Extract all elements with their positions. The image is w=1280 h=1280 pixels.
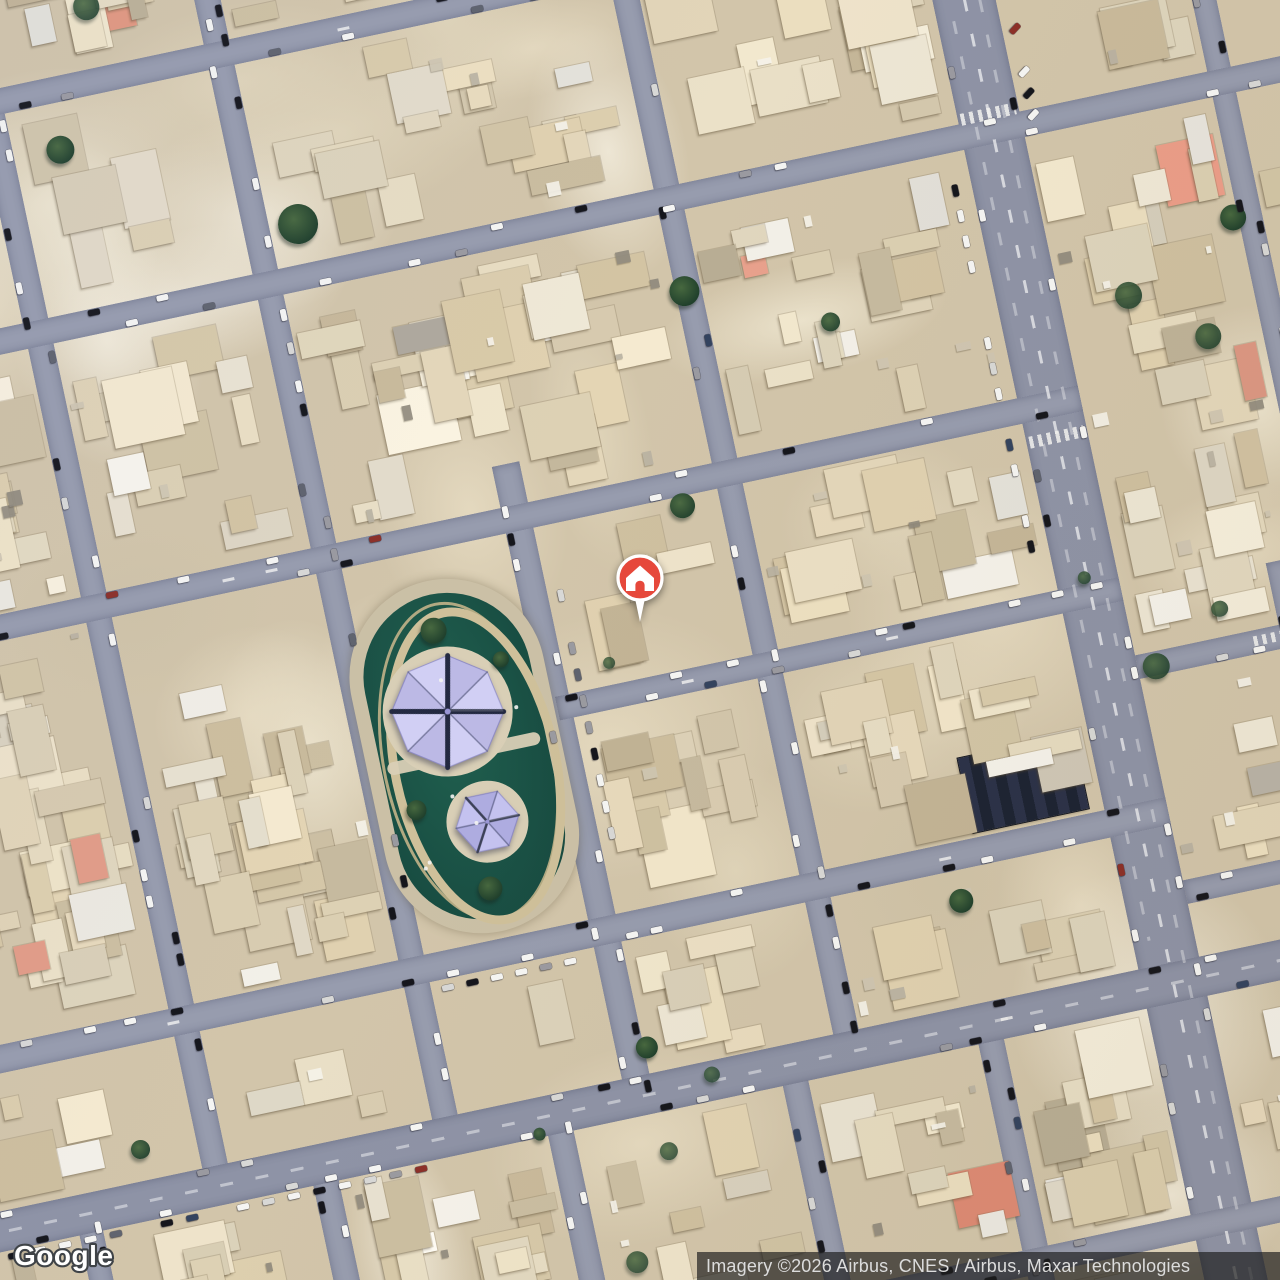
building bbox=[0, 911, 20, 942]
parked-car bbox=[186, 1214, 199, 1222]
building bbox=[358, 1091, 387, 1116]
parked-car bbox=[1009, 22, 1022, 35]
tree bbox=[129, 1139, 151, 1161]
parked-car bbox=[490, 973, 503, 981]
building bbox=[1063, 1160, 1128, 1226]
building bbox=[1241, 1100, 1266, 1126]
home-place-marker[interactable] bbox=[608, 550, 672, 626]
attribution-text: Imagery ©2026 Airbus, CNES / Airbus, Max… bbox=[697, 1256, 1190, 1277]
parked-car bbox=[288, 1192, 301, 1200]
google-logo[interactable]: Google bbox=[10, 1238, 160, 1274]
building bbox=[466, 84, 491, 109]
attribution-bar: Imagery ©2026 Airbus, CNES / Airbus, Max… bbox=[697, 1252, 1280, 1280]
building bbox=[216, 356, 253, 394]
building bbox=[0, 1130, 64, 1202]
parked-car bbox=[515, 968, 528, 976]
building bbox=[775, 0, 832, 38]
rooftop-unit bbox=[546, 181, 562, 197]
building bbox=[1035, 156, 1085, 222]
building bbox=[46, 576, 66, 595]
building bbox=[6, 0, 65, 7]
rooftop-unit bbox=[969, 1085, 976, 1093]
rooftop-unit bbox=[1205, 246, 1212, 254]
building bbox=[1247, 759, 1280, 795]
building bbox=[1075, 1018, 1153, 1099]
building bbox=[1233, 716, 1278, 753]
building bbox=[523, 273, 590, 341]
building bbox=[642, 0, 719, 44]
parked-car bbox=[957, 210, 965, 223]
tree bbox=[624, 1249, 650, 1275]
building bbox=[69, 883, 135, 941]
building bbox=[246, 1081, 304, 1116]
building bbox=[528, 980, 575, 1046]
building bbox=[697, 710, 739, 754]
building bbox=[225, 495, 258, 534]
building bbox=[101, 366, 185, 448]
building bbox=[663, 964, 711, 1011]
parked-car bbox=[564, 957, 577, 965]
building bbox=[24, 4, 57, 46]
rooftop-unit bbox=[838, 764, 848, 774]
building bbox=[107, 452, 151, 496]
rooftop-unit bbox=[650, 279, 660, 289]
parked-car bbox=[110, 1230, 123, 1238]
rooftop-unit bbox=[877, 357, 889, 369]
building bbox=[897, 365, 926, 412]
building bbox=[0, 1095, 22, 1120]
parked-car bbox=[989, 362, 997, 375]
park-bench bbox=[474, 820, 479, 825]
building bbox=[870, 35, 938, 105]
satellite-map-canvas[interactable] bbox=[0, 0, 1280, 1280]
parked-car bbox=[951, 184, 959, 197]
rooftop-unit bbox=[6, 490, 23, 508]
building bbox=[1124, 486, 1162, 524]
parked-car bbox=[160, 1219, 173, 1227]
building bbox=[295, 1050, 353, 1105]
parked-car bbox=[1005, 438, 1013, 451]
rooftop-unit bbox=[440, 1249, 449, 1259]
building bbox=[232, 394, 259, 446]
building bbox=[1097, 0, 1169, 70]
rooftop-unit bbox=[1092, 412, 1109, 428]
building bbox=[802, 59, 841, 102]
parked-car bbox=[1018, 65, 1031, 78]
parked-car bbox=[262, 1197, 275, 1205]
building bbox=[55, 1139, 105, 1177]
building bbox=[687, 67, 755, 135]
parked-car bbox=[995, 388, 1003, 401]
rooftop-unit bbox=[1177, 539, 1193, 556]
parked-car bbox=[539, 963, 552, 971]
rooftop-unit bbox=[873, 1223, 884, 1236]
rooftop-unit bbox=[862, 977, 875, 990]
satellite-map-viewport[interactable]: Google Imagery ©2026 Airbus, CNES / Airb… bbox=[0, 0, 1280, 1280]
rooftop-unit bbox=[803, 215, 812, 227]
parked-car bbox=[442, 983, 455, 991]
rooftop-unit bbox=[1102, 280, 1111, 289]
building bbox=[909, 173, 949, 231]
building bbox=[58, 1090, 112, 1144]
building bbox=[904, 773, 977, 845]
building bbox=[1133, 169, 1171, 207]
parked-car bbox=[967, 260, 975, 273]
parked-car bbox=[984, 337, 992, 350]
rooftop-unit bbox=[1264, 510, 1271, 517]
rooftop-unit bbox=[955, 341, 971, 351]
shade-umbrella-structure bbox=[442, 777, 532, 867]
rooftop-unit bbox=[1058, 251, 1073, 265]
rooftop-unit bbox=[1237, 677, 1252, 688]
google-logo-text: Google bbox=[14, 1240, 113, 1271]
parked-car bbox=[1023, 87, 1036, 100]
building bbox=[241, 962, 281, 987]
parked-car bbox=[466, 978, 479, 986]
parked-car bbox=[962, 235, 970, 248]
building bbox=[861, 458, 936, 532]
parked-car bbox=[237, 1203, 250, 1211]
building bbox=[656, 1242, 694, 1280]
building bbox=[1259, 166, 1280, 207]
